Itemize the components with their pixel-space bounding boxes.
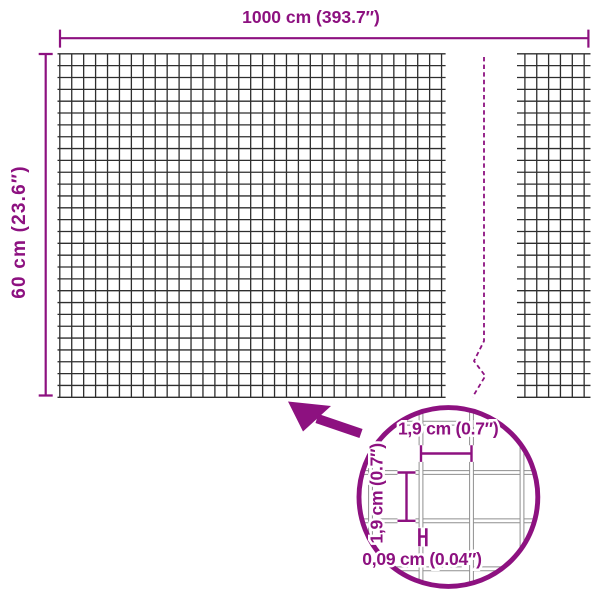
svg-text:1,9 cm (0.7″): 1,9 cm (0.7″): [367, 443, 387, 543]
svg-text:0,09 cm (0.04″): 0,09 cm (0.04″): [362, 549, 481, 569]
svg-text:60 cm (23.6″): 60 cm (23.6″): [9, 165, 30, 299]
svg-text:1,9 cm (0.7″): 1,9 cm (0.7″): [398, 419, 498, 439]
svg-text:1000 cm (393.7″): 1000 cm (393.7″): [242, 7, 380, 27]
